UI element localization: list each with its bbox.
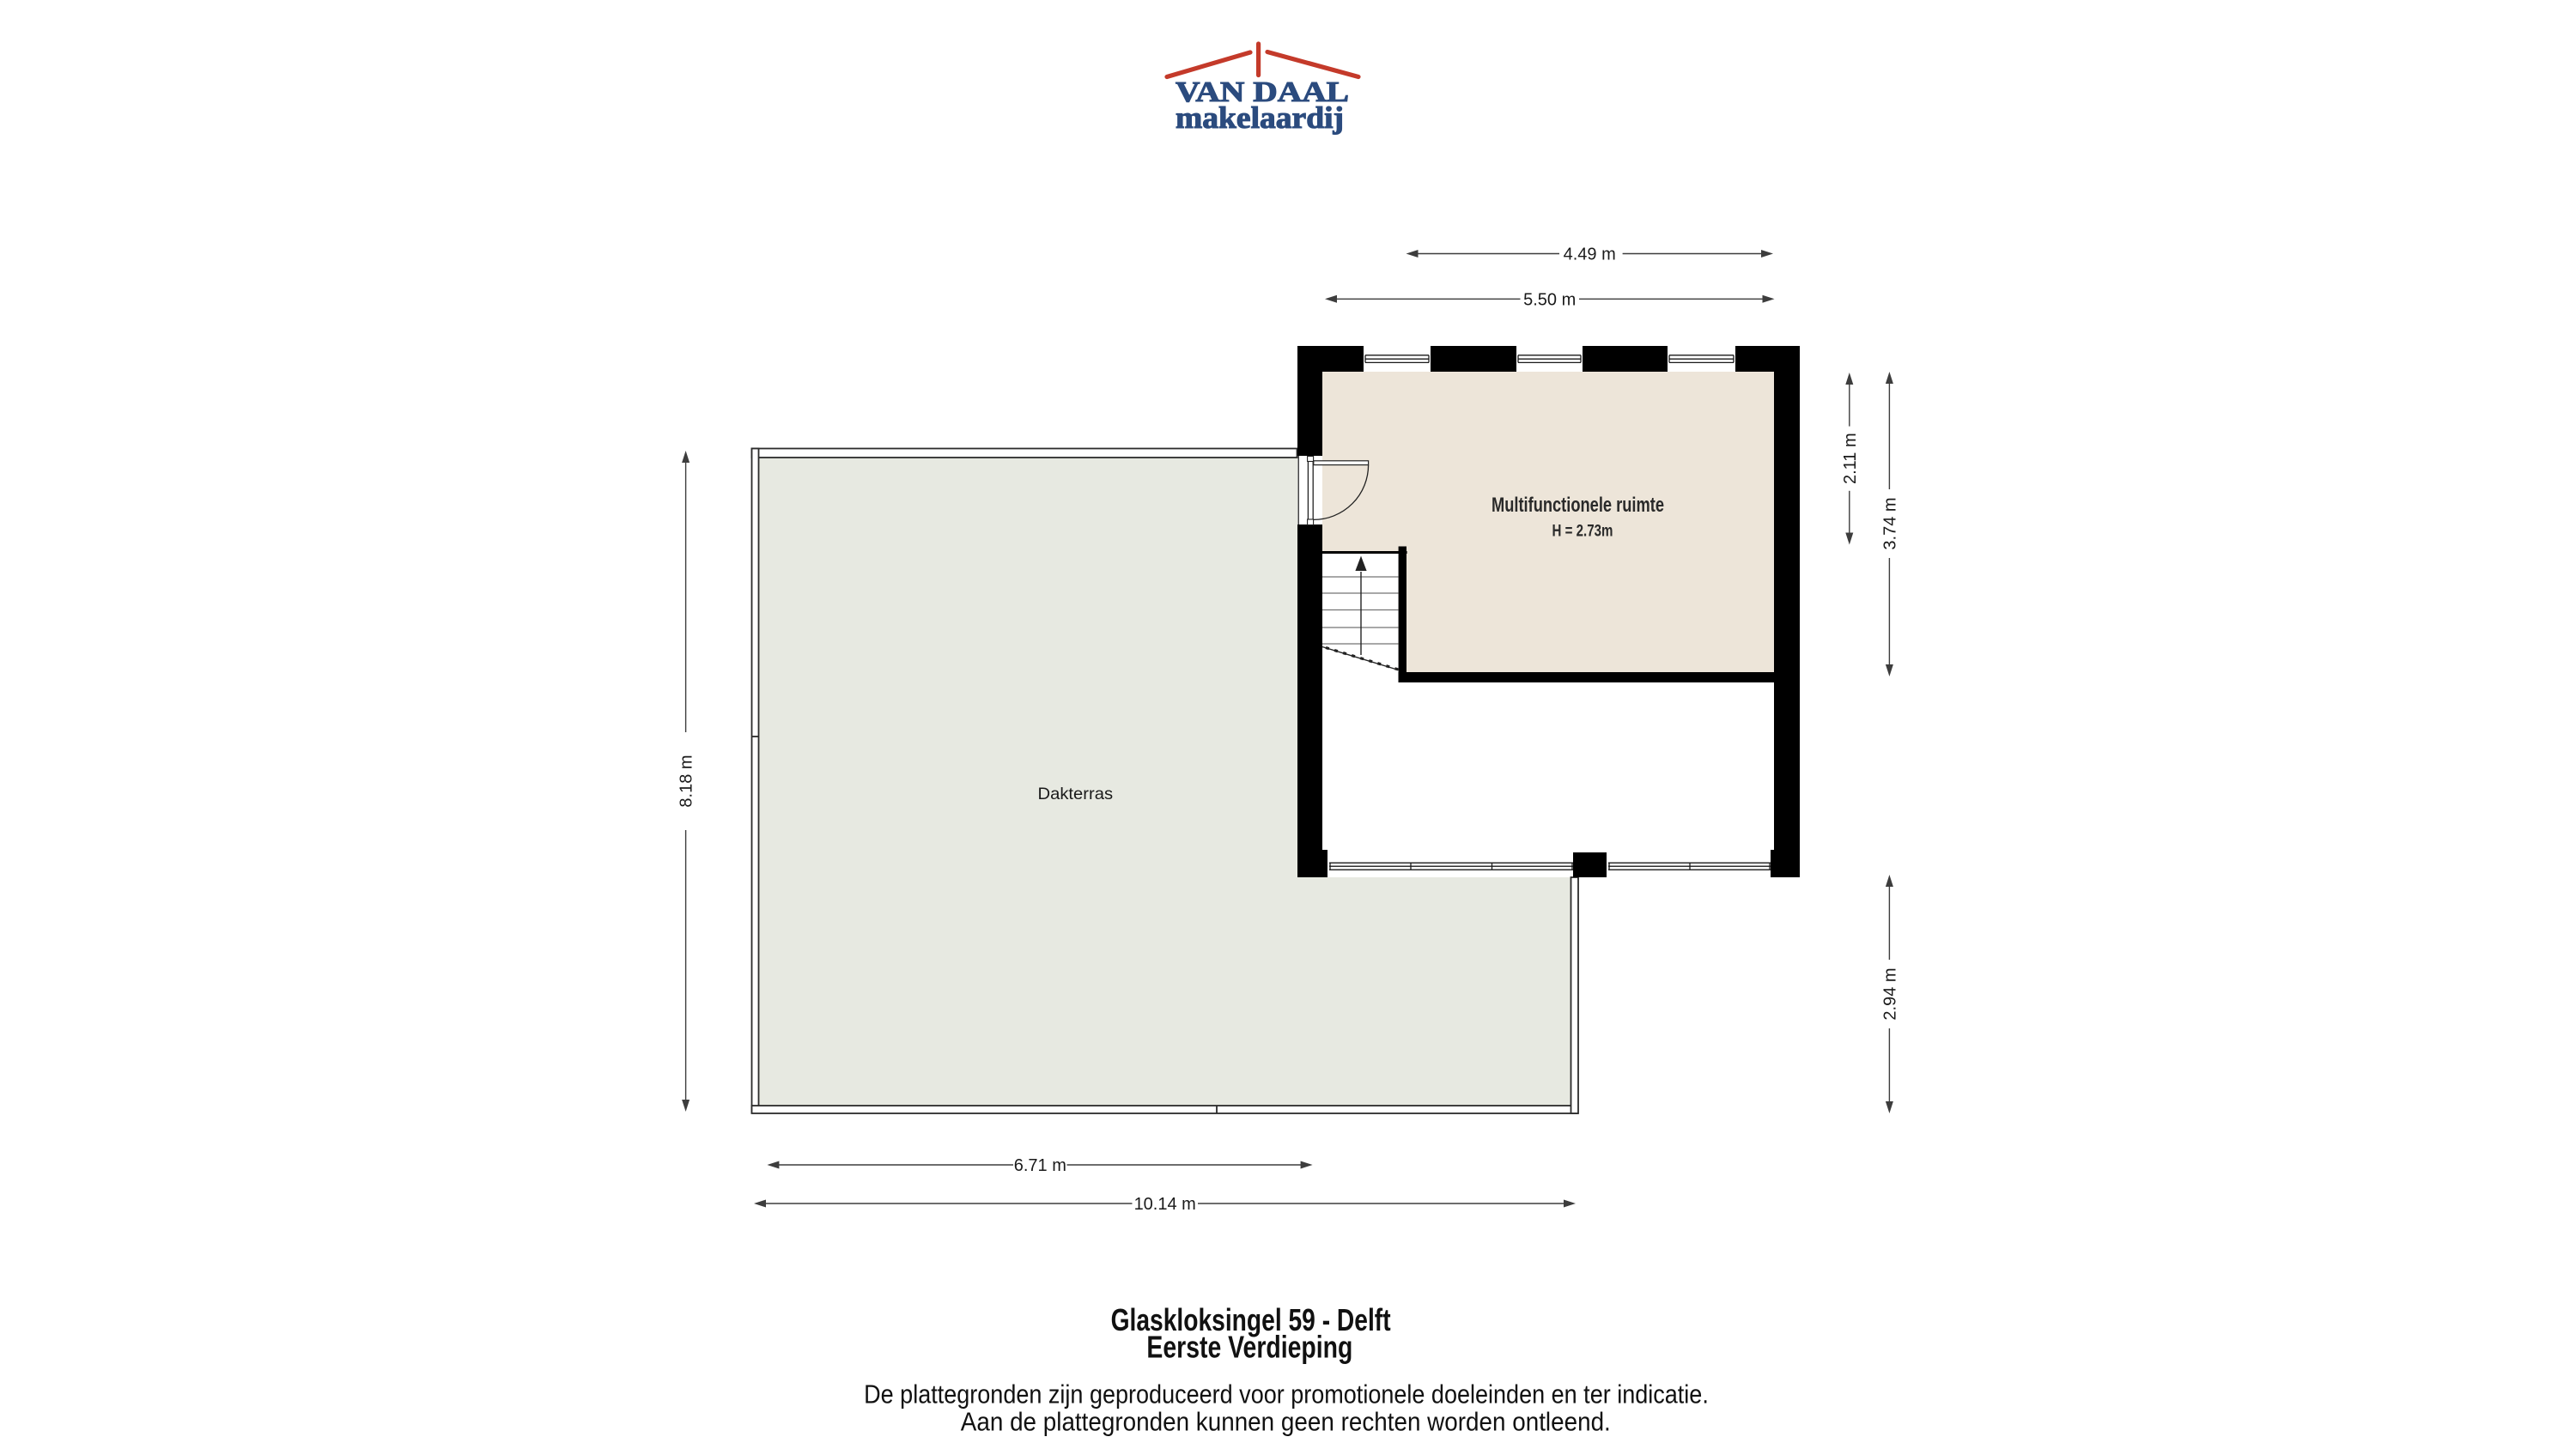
svg-text:8.18 m: 8.18 m bbox=[677, 755, 696, 807]
svg-text:5.50 m: 5.50 m bbox=[1523, 290, 1576, 309]
svg-text:H = 2.73m: H = 2.73m bbox=[1552, 523, 1613, 541]
svg-text:Eerste Verdieping: Eerste Verdieping bbox=[1146, 1329, 1352, 1364]
svg-text:Aan de plattegronden kunnen ge: Aan de plattegronden kunnen geen rechten… bbox=[961, 1406, 1611, 1436]
svg-text:De plattegronden zijn geproduc: De plattegronden zijn geproduceerd voor … bbox=[864, 1379, 1709, 1409]
svg-text:Multifunctionele ruimte: Multifunctionele ruimte bbox=[1492, 494, 1664, 517]
svg-text:4.49 m: 4.49 m bbox=[1564, 246, 1616, 264]
svg-text:2.11 m: 2.11 m bbox=[1841, 433, 1860, 484]
svg-text:2.94 m: 2.94 m bbox=[1880, 967, 1899, 1020]
svg-text:makelaardij: makelaardij bbox=[1176, 100, 1344, 135]
svg-text:3.74 m: 3.74 m bbox=[1880, 497, 1899, 549]
svg-text:Dakterras: Dakterras bbox=[1038, 785, 1114, 803]
svg-text:6.71 m: 6.71 m bbox=[1014, 1156, 1066, 1175]
svg-text:10.14 m: 10.14 m bbox=[1134, 1195, 1196, 1214]
